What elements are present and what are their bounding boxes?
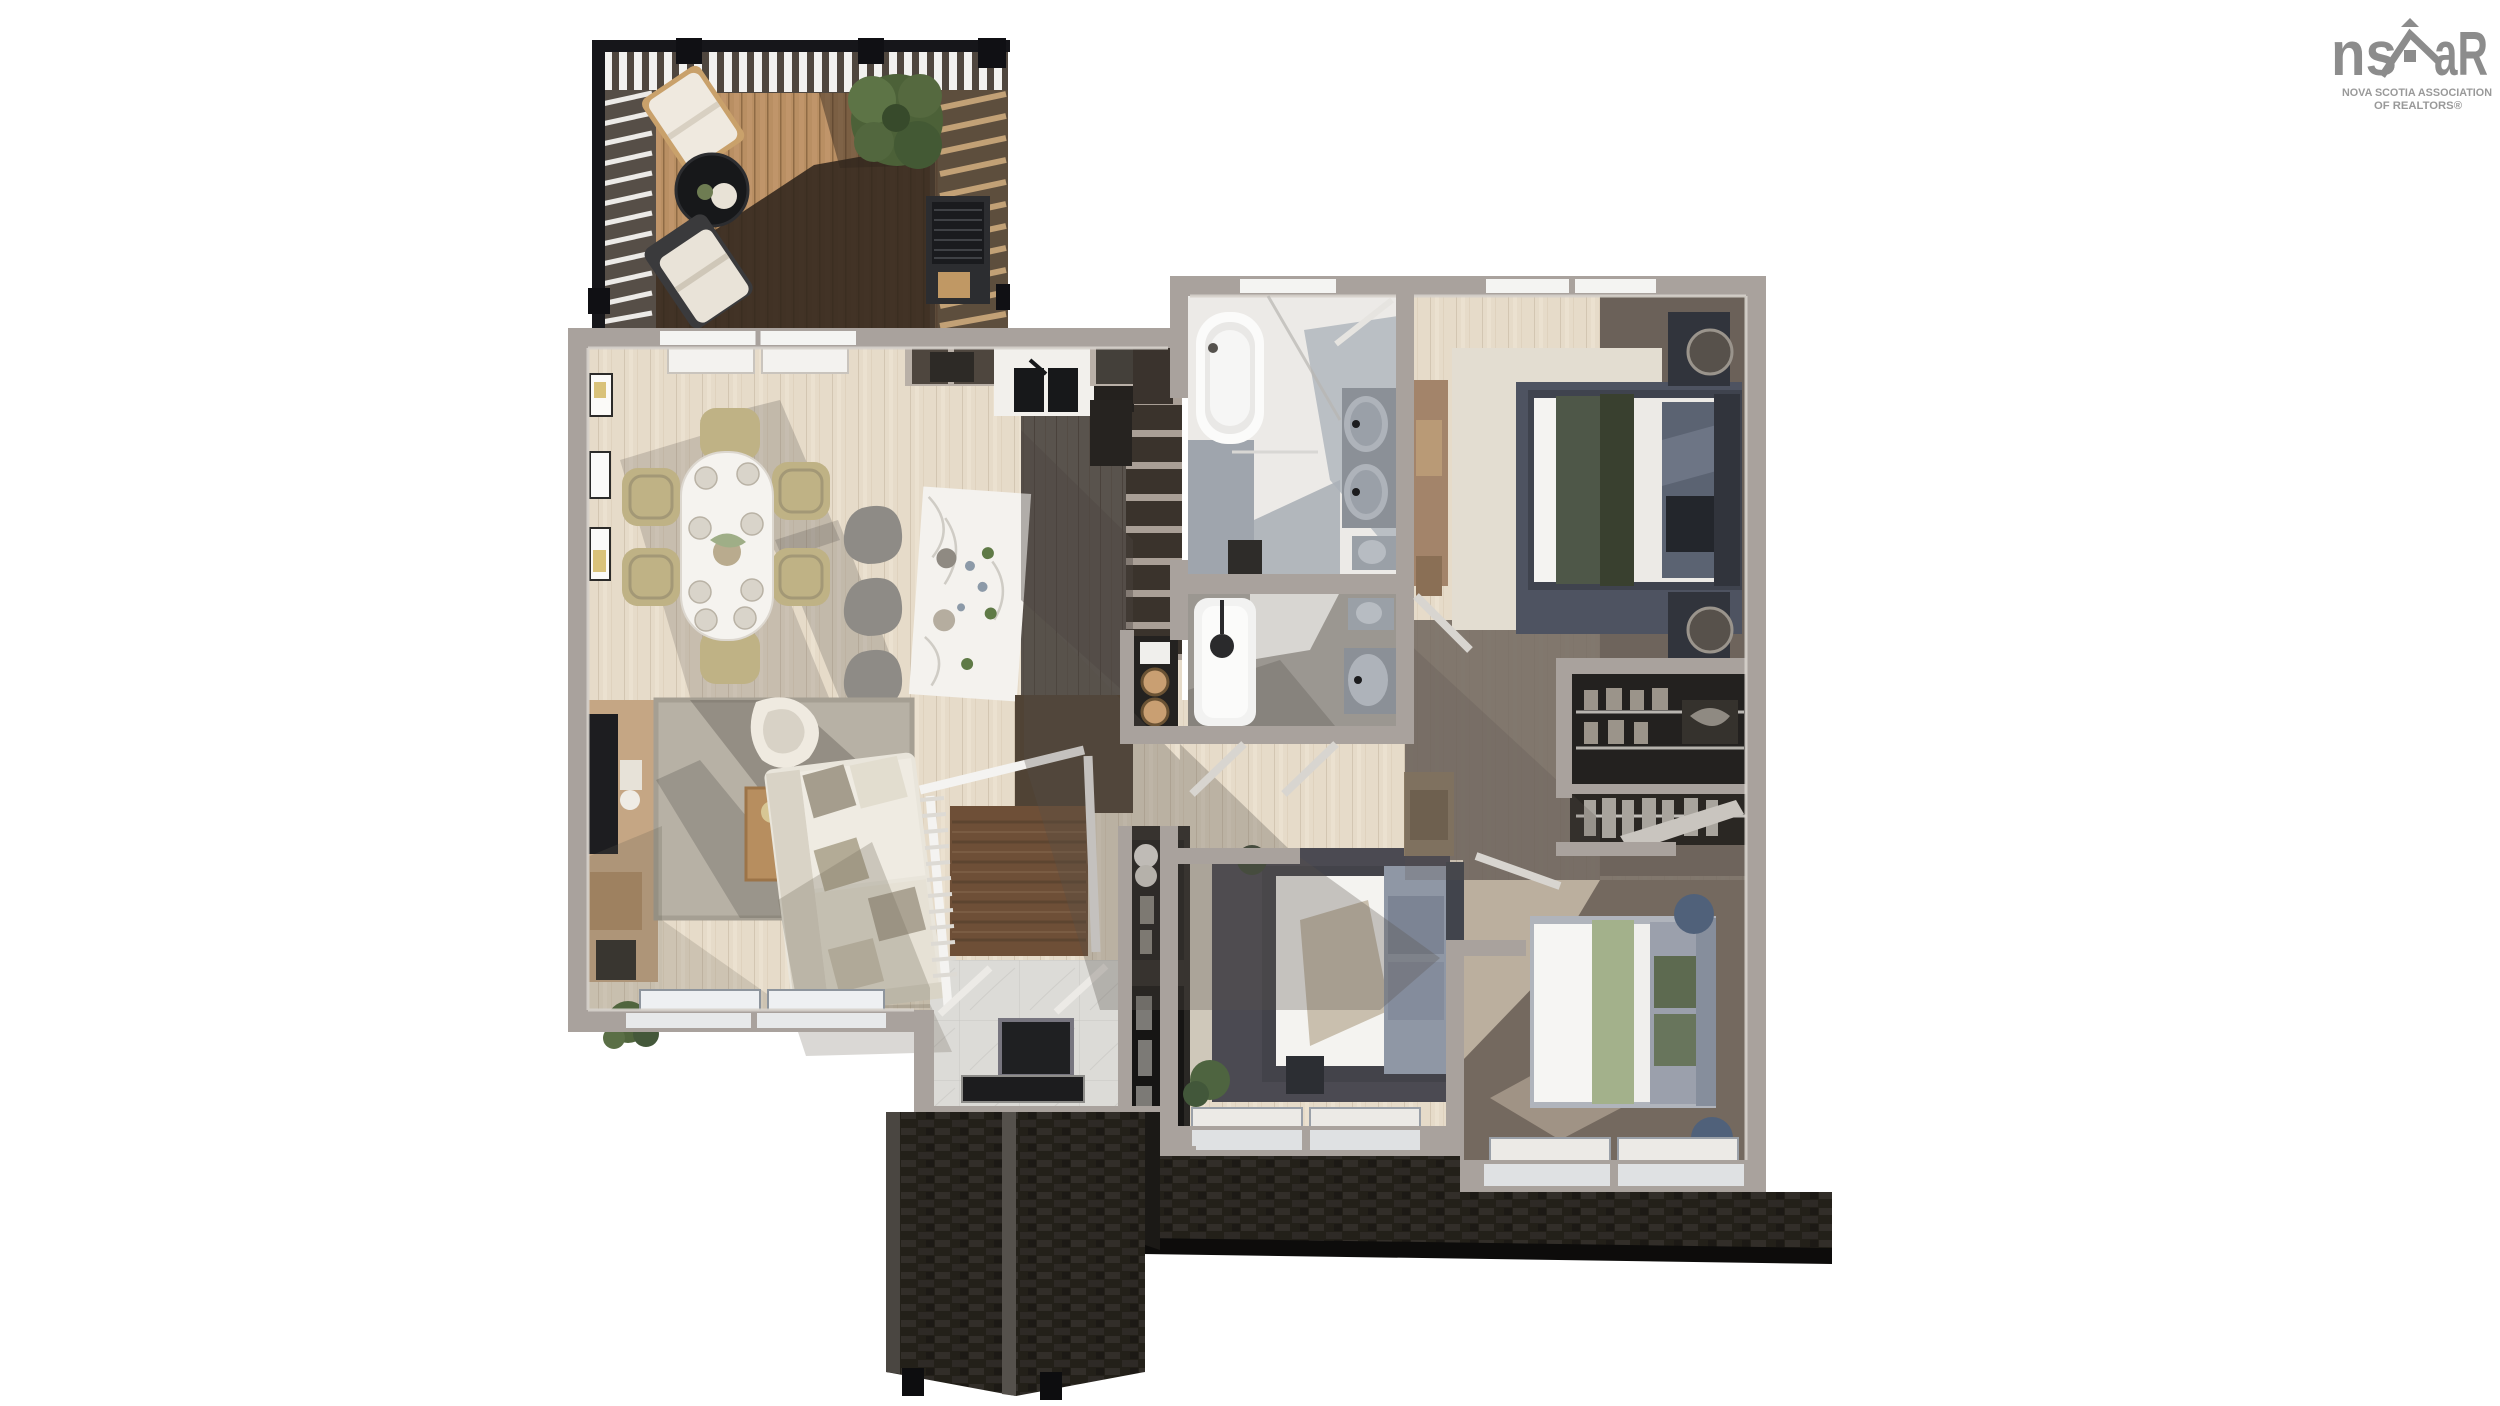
svg-text:aR: aR [2434, 20, 2488, 89]
svg-text:OF REALTORS®: OF REALTORS® [2374, 100, 2462, 112]
svg-text:NOVA SCOTIA ASSOCIATION: NOVA SCOTIA ASSOCIATION [2342, 87, 2492, 99]
svg-text:ns: ns [2331, 20, 2397, 89]
